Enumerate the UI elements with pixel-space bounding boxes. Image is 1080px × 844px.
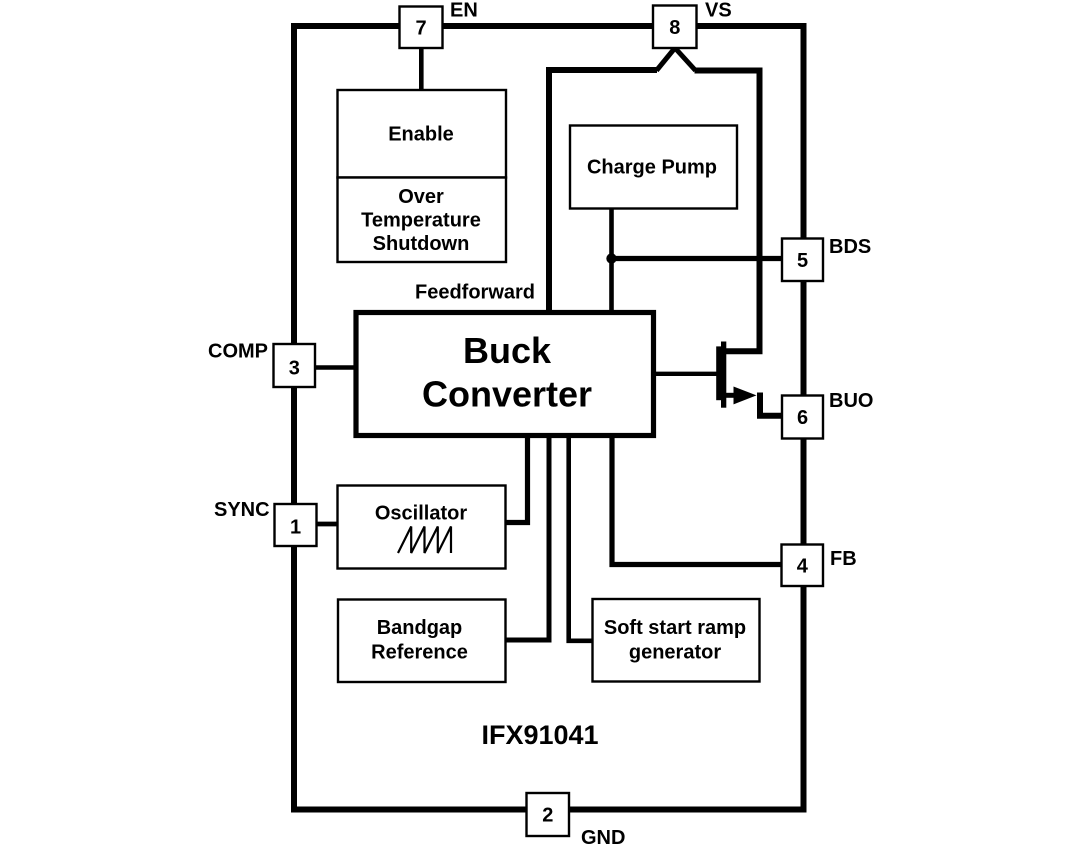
svg-text:Feedforward: Feedforward	[415, 282, 535, 304]
svg-text:6: 6	[797, 407, 808, 429]
svg-text:COMP: COMP	[208, 341, 268, 363]
svg-text:Charge Pump: Charge Pump	[587, 157, 717, 179]
svg-text:Over: Over	[398, 186, 444, 208]
svg-text:4: 4	[797, 556, 809, 578]
svg-text:BUO: BUO	[829, 390, 873, 412]
svg-text:2: 2	[542, 805, 553, 827]
svg-text:IFX91041: IFX91041	[481, 720, 598, 750]
svg-text:VS: VS	[705, 0, 732, 22]
svg-text:SYNC: SYNC	[214, 499, 270, 521]
svg-text:Soft start ramp: Soft start ramp	[604, 617, 746, 639]
svg-text:Enable: Enable	[388, 124, 454, 146]
svg-text:generator: generator	[629, 642, 721, 664]
svg-text:5: 5	[797, 250, 808, 272]
svg-text:BDS: BDS	[829, 236, 871, 258]
svg-text:Converter: Converter	[422, 374, 592, 415]
svg-text:Temperature: Temperature	[361, 210, 481, 232]
svg-text:Reference: Reference	[371, 642, 468, 664]
svg-text:8: 8	[669, 17, 680, 39]
svg-text:7: 7	[415, 18, 426, 40]
svg-text:1: 1	[290, 517, 301, 539]
svg-text:EN: EN	[450, 0, 478, 22]
svg-text:Bandgap: Bandgap	[377, 617, 463, 639]
svg-text:FB: FB	[830, 548, 857, 570]
svg-text:Shutdown: Shutdown	[373, 233, 470, 255]
svg-text:GND: GND	[581, 827, 625, 844]
svg-text:Buck: Buck	[463, 330, 552, 371]
svg-text:Oscillator: Oscillator	[375, 503, 467, 525]
svg-text:3: 3	[289, 358, 300, 380]
